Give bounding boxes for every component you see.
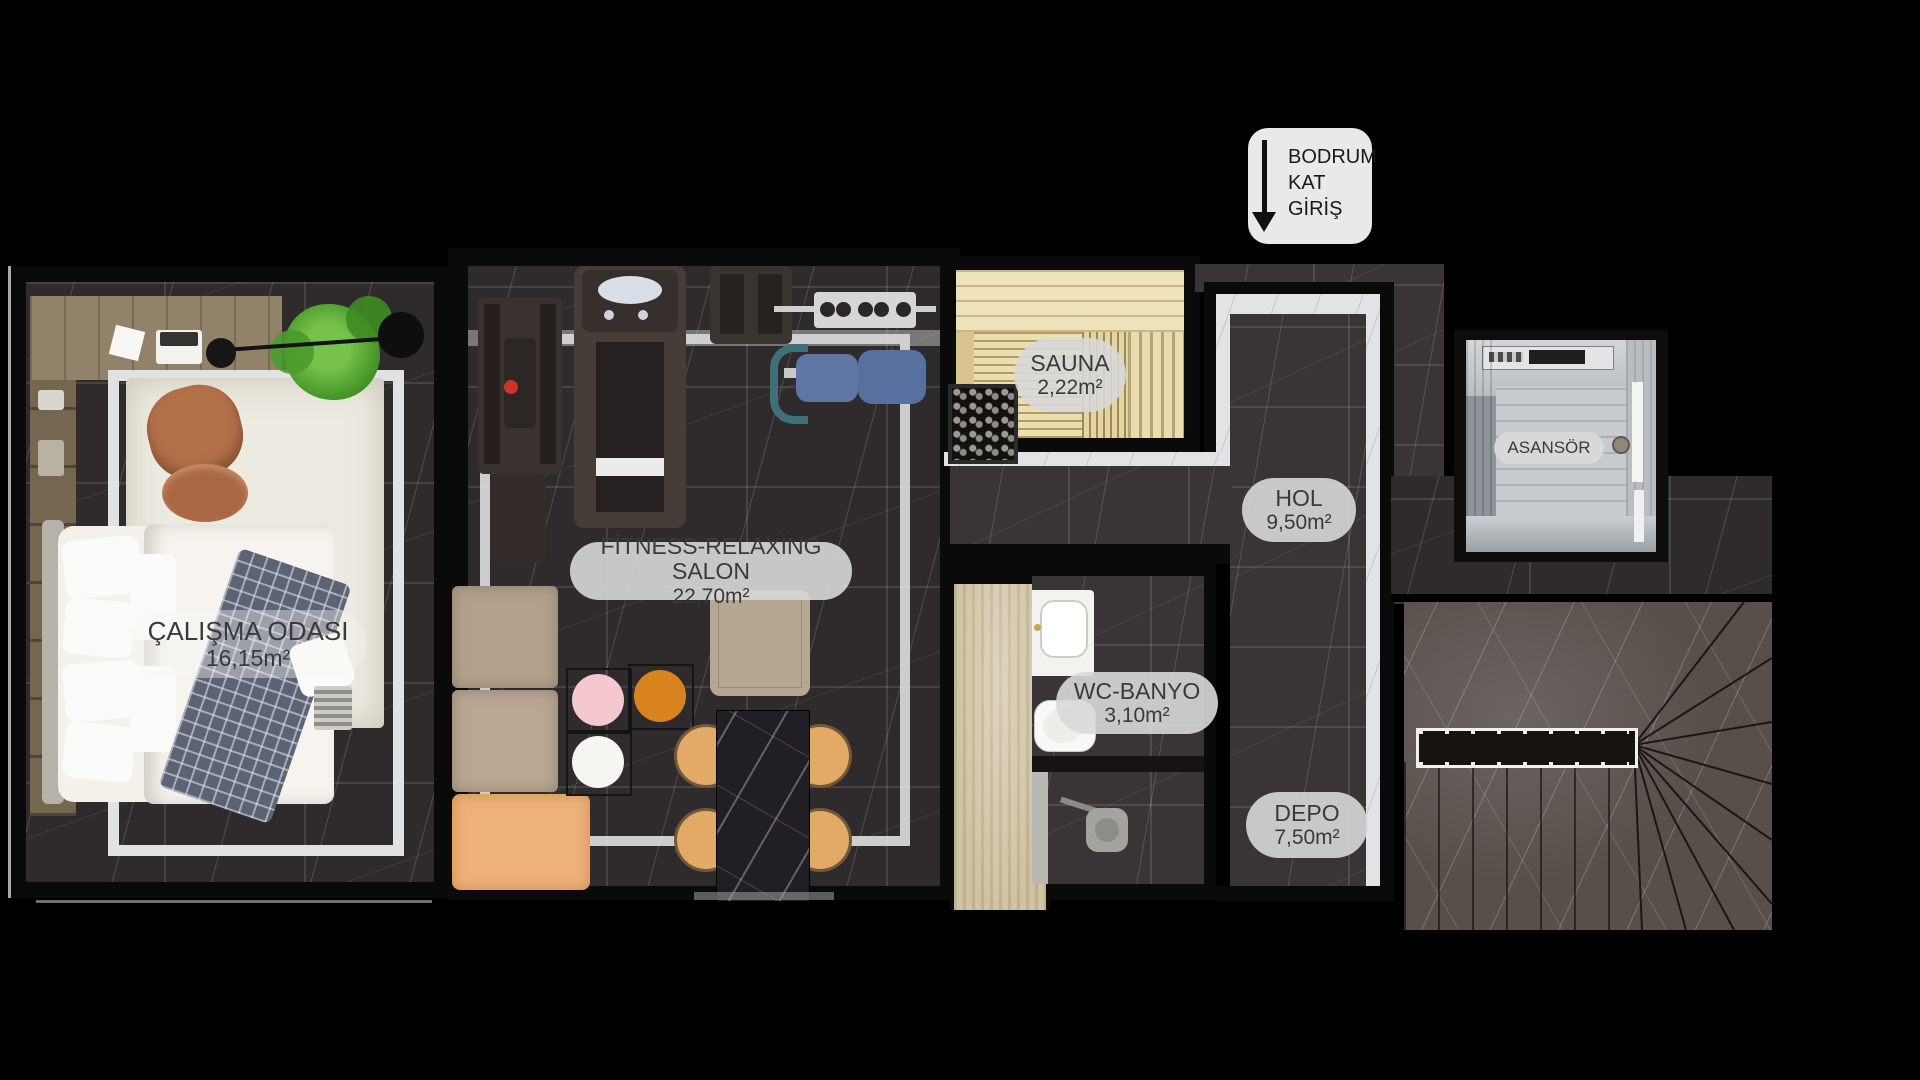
potted-plant [284,304,380,400]
railing-ticks [1419,730,1629,734]
room-label-calisma-odasi: ÇALIŞMA ODASI 16,15m² [130,610,366,678]
bed-pillow-small [130,666,176,752]
coffee-table-white [572,736,624,788]
staircase [1404,602,1772,930]
room-name: WC-BANYO [1074,679,1201,704]
down-arrow-icon [1262,140,1267,214]
weight-bench-pad [796,354,858,402]
cable-machine [710,266,792,344]
wall-hall-left [1204,282,1216,462]
room-name: HOL [1275,486,1322,511]
badge-line: BODRUM [1288,144,1370,170]
dumbbell-rack [814,292,916,328]
room-label-wc-banyo: WC-BANYO 3,10m² [1056,672,1218,734]
room-area: 9,50m² [1266,511,1331,534]
treadmill-step-plate [596,458,664,476]
plan-bottom-highlight [36,900,432,903]
cable-weight-stack [720,274,744,334]
plan-edge-highlight [8,266,11,898]
door-light-strip [1634,490,1644,542]
machine-red-knob [504,380,518,394]
hall-band-top [1216,294,1380,314]
stairs-top-wall-line [1391,594,1772,602]
room-name: DEPO [1274,801,1339,826]
machine-rail [540,304,556,464]
shower-head [1086,808,1128,852]
shelf-item [38,440,64,476]
cable-weight-stack [758,274,782,334]
sofa-back-cushion [452,586,558,688]
shower-head-face [1095,818,1119,842]
room-sauna: SAUNA 2,22m² [956,270,1184,438]
laptop [156,330,202,364]
bed-pillow [62,597,137,659]
hall-west-extension-floor [950,466,1232,544]
shower-glass-panel [1032,772,1048,884]
room-name: FİTNESS-RELAXİNG SALON [570,534,852,585]
elevator-button-panel [1612,436,1630,454]
bed-pillow [61,720,136,783]
floor-plan-canvas: HOL 9,50m² DEPO 7,50m² [0,0,1920,1080]
stair-railing [1416,728,1638,768]
sink-counter [1032,590,1094,676]
dining-table-marble [716,710,810,902]
bed-bench [314,686,352,730]
dumbbell [874,302,889,317]
room-name: SAUNA [1030,351,1109,376]
pendant-light [378,312,424,358]
room-label-sauna: SAUNA 2,22m² [1014,338,1126,412]
multi-gym-machine [478,298,562,474]
entrance-badge-text: BODRUM KAT GİRİŞ [1288,144,1370,222]
room-label-depo: DEPO 7,50m² [1246,792,1368,858]
entrance-badge: BODRUM KAT GİRİŞ [1248,128,1372,244]
sauna-floor-slats [1128,332,1184,438]
ottoman-stitching [718,598,802,688]
desk-lamp [206,338,236,368]
dumbbell [858,302,873,317]
room-fitness-salon: FİTNESS-RELAXİNG SALON 22,70m² [468,266,940,886]
shelf-item [38,390,64,410]
elevator-cab: ASANSÖR [1466,340,1656,552]
treadmill-screen [598,276,662,304]
elevator: ASANSÖR [1454,330,1668,562]
plant-frond [270,330,314,374]
dumbbell [820,302,835,317]
leather-chair-seat [162,464,248,522]
badge-line: KAT [1288,170,1370,196]
shower-divider-wall [1032,756,1204,772]
sink-bowl [1040,600,1088,658]
table-runner-strip [694,892,834,900]
barbell-bar [916,306,936,312]
badge-line: GİRİŞ [1288,196,1370,222]
barbell-bar [774,306,814,312]
railing-ticks [1419,762,1629,766]
coffee-table-orange [634,670,686,722]
room-area: 2,22m² [1037,376,1102,399]
dumbbell [836,302,851,317]
room-area: 3,10m² [1104,704,1169,727]
room-calisma-odasi: ÇALIŞMA ODASI 16,15m² [26,282,434,882]
sauna-upper-bench [956,270,1184,332]
sauna-heater [948,384,1018,464]
down-arrow-head-icon [1252,212,1276,232]
hall-band-left [1216,294,1230,454]
room-label-fitness-salon: FİTNESS-RELAXİNG SALON 22,70m² [570,542,852,600]
room-area: 22,70m² [672,585,749,608]
straight-steps-lines [1404,762,1634,930]
room-area: 16,15m² [206,646,290,671]
elevator-ceiling-panel [1482,346,1614,370]
treadmill-button [638,310,648,320]
treadmill [574,266,686,528]
sofa-chaise [452,794,590,890]
wall-hall-bottom [1216,886,1394,902]
hall-band-right [1366,294,1380,886]
dumbbell [896,302,911,317]
treadmill-belt [596,342,664,512]
sofa-back-cushion [452,690,558,792]
coffee-table-pink [572,674,624,726]
machine-rail [484,304,500,464]
faucet [1034,624,1041,631]
elevator-threshold [1466,516,1656,552]
weight-bench-pad [858,350,926,404]
room-label-asansor: ASANSÖR [1494,432,1604,464]
room-name: ÇALIŞMA ODASI [148,617,349,646]
room-label-hol: HOL 9,50m² [1242,478,1356,542]
panel-display [1529,350,1585,364]
room-name: ASANSÖR [1507,439,1590,458]
laptop-keyboard [160,332,198,346]
door-light-strip [1632,382,1643,482]
treadmill-button [604,310,614,320]
room-area: 7,50m² [1274,826,1339,849]
gym-bench-vertical [490,474,546,562]
room-wc-banyo: WC-BANYO 3,10m² [1032,576,1204,884]
